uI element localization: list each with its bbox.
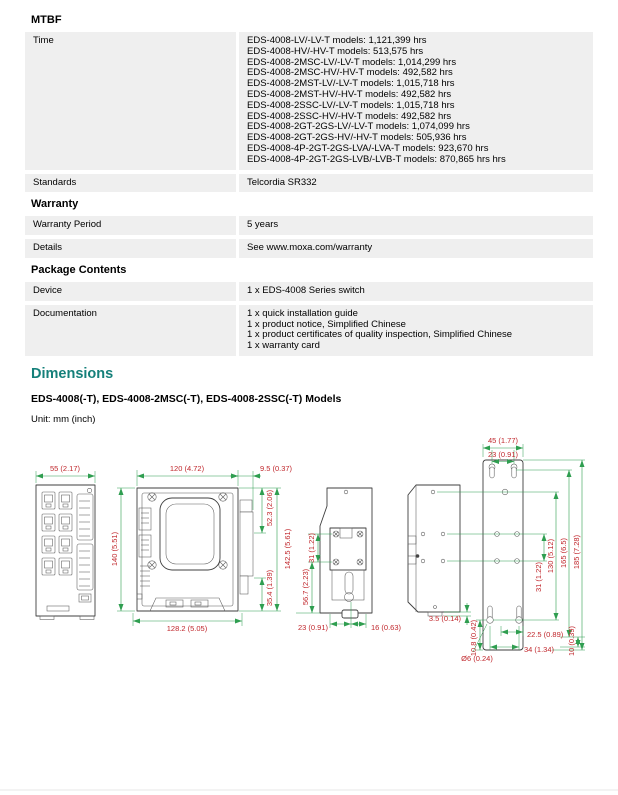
- dim-label-31-back: 31 (1.22): [307, 532, 316, 563]
- row-label: Time: [25, 32, 236, 170]
- dim-label-142-5: 142.5 (5.61): [283, 528, 292, 569]
- row-value: 5 years: [239, 216, 593, 235]
- dim-label-56-7: 56.7 (2.23): [301, 568, 310, 605]
- figure-wallmount-view: [483, 460, 523, 650]
- package-contents-section: Package Contents Device 1 x EDS-4008 Ser…: [25, 264, 593, 356]
- row-value: 1 x quick installation guide 1 x product…: [239, 305, 593, 356]
- dim-label-52-3: 52.3 (2.06): [265, 489, 274, 526]
- page-bottom-rule: [0, 789, 618, 791]
- dim-front-width: 55 (2.17): [36, 464, 95, 483]
- dimensions-heading: Dimensions: [31, 366, 593, 383]
- row-label: Device: [25, 282, 236, 301]
- dim-label-23-back: 23 (0.91): [298, 623, 329, 632]
- row-value: See www.moxa.com/warranty: [239, 239, 593, 258]
- figure-top-view: [137, 488, 253, 611]
- package-contents-heading: Package Contents: [31, 264, 593, 276]
- figure-back-view: [320, 488, 372, 618]
- dim-label-45: 45 (1.77): [488, 436, 519, 445]
- mtbf-table: Time EDS-4008-LV/-LV-T models: 1,121,399…: [25, 32, 593, 192]
- row-label: Warranty Period: [25, 216, 236, 235]
- mtbf-section: MTBF Time EDS-4008-LV/-LV-T models: 1,12…: [25, 14, 593, 192]
- dim-label-3-5: 3.5 (0.14): [429, 614, 462, 623]
- figure-side-view: [408, 485, 460, 616]
- dim-label-35-4: 35.4 (1.39): [265, 569, 274, 606]
- warranty-section: Warranty Warranty Period 5 years Details…: [25, 198, 593, 258]
- table-row: Standards Telcordia SR332: [25, 174, 593, 193]
- dim-label-140: 140 (5.51): [110, 531, 119, 566]
- row-label: Standards: [25, 174, 236, 193]
- value-line: 5 years: [247, 220, 585, 231]
- dim-label-165: 165 (6.5): [559, 537, 568, 568]
- row-label: Details: [25, 239, 236, 258]
- row-value: 1 x EDS-4008 Series switch: [239, 282, 593, 301]
- dimensions-models-title: EDS-4008(-T), EDS-4008-2MSC(-T), EDS-400…: [31, 393, 593, 405]
- dim-label-23-plate: 23 (0.91): [488, 450, 519, 459]
- warranty-heading: Warranty: [31, 198, 593, 210]
- value-line: 1 x EDS-4008 Series switch: [247, 286, 585, 297]
- table-row: Details See www.moxa.com/warranty: [25, 239, 593, 258]
- value-line: Telcordia SR332: [247, 178, 585, 189]
- row-value: EDS-4008-LV/-LV-T models: 1,121,399 hrs …: [239, 32, 593, 170]
- value-line: EDS-4008-HV/-HV-T models: 513,575 hrs: [247, 47, 585, 58]
- dimensions-drawing: 55 (2.17) 120 (4.72) 9.5 (0.37) 140 (5.5…: [22, 430, 596, 684]
- value-line: 1 x warranty card: [247, 341, 585, 352]
- dim-label-9-5: 9.5 (0.37): [260, 464, 293, 473]
- mtbf-heading: MTBF: [31, 14, 593, 26]
- dim-label-dia6: Ø6 (0.24): [461, 654, 493, 663]
- dimensions-unit-label: Unit: mm (inch): [31, 414, 593, 425]
- value-line: EDS-4008-2SSC-LV/-LV-T models: 1,015,718…: [247, 101, 585, 112]
- table-row: Time EDS-4008-LV/-LV-T models: 1,121,399…: [25, 32, 593, 170]
- figure-front-view: [36, 485, 95, 620]
- dim-label-128-2: 128.2 (5.05): [167, 624, 208, 633]
- dim-label-22-5: 22.5 (0.89): [527, 630, 564, 639]
- datasheet-page: MTBF Time EDS-4008-LV/-LV-T models: 1,12…: [0, 0, 618, 425]
- warranty-table: Warranty Period 5 years Details See www.…: [25, 216, 593, 258]
- row-label: Documentation: [25, 305, 236, 356]
- package-contents-table: Device 1 x EDS-4008 Series switch Docume…: [25, 282, 593, 356]
- dim-label-130: 130 (5.12): [546, 538, 555, 573]
- dim-label-31-plate: 31 (1.22): [534, 561, 543, 592]
- dim-label-16: 16 (0.63): [371, 623, 402, 632]
- value-line: 1 x quick installation guide: [247, 309, 585, 320]
- dim-label-120: 120 (4.72): [170, 464, 205, 473]
- value-line: EDS-4008-4P-2GT-2GS-LVB/-LVB-T models: 8…: [247, 155, 585, 166]
- table-row: Documentation 1 x quick installation gui…: [25, 305, 593, 356]
- row-value: Telcordia SR332: [239, 174, 593, 193]
- dim-label-34: 34 (1.34): [524, 645, 555, 654]
- table-row: Device 1 x EDS-4008 Series switch: [25, 282, 593, 301]
- dim-label-185: 185 (7.28): [572, 534, 581, 569]
- dim-label-10: 10 (0.39): [567, 625, 576, 656]
- dim-label-55: 55 (2.17): [50, 464, 81, 473]
- table-row: Warranty Period 5 years: [25, 216, 593, 235]
- value-line: See www.moxa.com/warranty: [247, 243, 585, 254]
